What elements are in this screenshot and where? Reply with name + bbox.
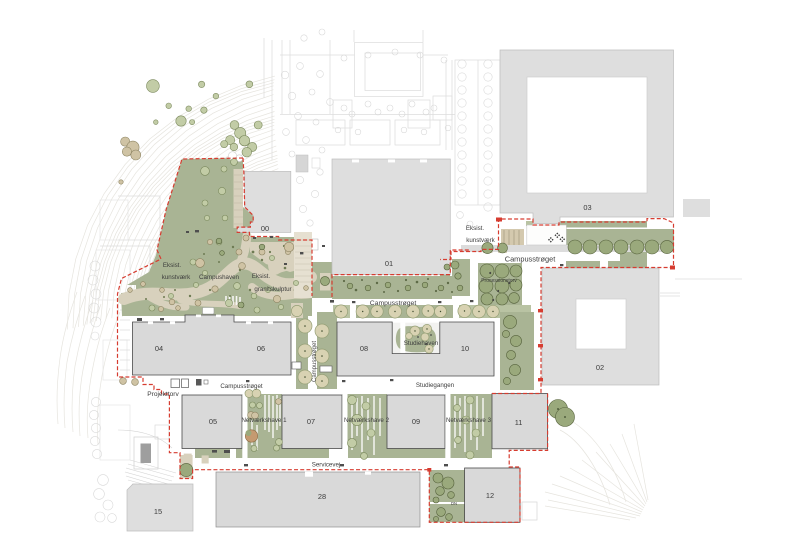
svg-text:15: 15 bbox=[154, 507, 162, 516]
svg-text:02: 02 bbox=[596, 363, 604, 372]
svg-text:11: 11 bbox=[515, 418, 523, 427]
svg-text:12: 12 bbox=[486, 491, 494, 500]
svg-text:Eksist.: Eksist. bbox=[252, 273, 271, 280]
svg-text:Projekttorv: Projekttorv bbox=[147, 391, 179, 398]
svg-text:kunstværk: kunstværk bbox=[162, 274, 191, 281]
svg-text:Processionstorv: Processionstorv bbox=[481, 278, 517, 284]
svg-text:03: 03 bbox=[583, 203, 591, 212]
svg-text:Campusstrøget: Campusstrøget bbox=[370, 300, 417, 307]
svg-text:kunstværk: kunstværk bbox=[466, 237, 495, 244]
svg-text:00: 00 bbox=[261, 224, 269, 233]
svg-text:10: 10 bbox=[461, 344, 469, 353]
svg-text:DN: DN bbox=[451, 501, 457, 506]
svg-text:07: 07 bbox=[307, 417, 315, 426]
svg-text:28: 28 bbox=[318, 492, 326, 501]
svg-text:04: 04 bbox=[155, 344, 163, 353]
svg-text:Campusstrøget: Campusstrøget bbox=[220, 383, 263, 390]
svg-text:granitskulptur: granitskulptur bbox=[254, 286, 291, 293]
svg-text:09: 09 bbox=[412, 417, 420, 426]
svg-text:Servicevej: Servicevej bbox=[312, 462, 341, 469]
svg-text:Campusstrøget: Campusstrøget bbox=[505, 255, 556, 264]
svg-text:Eksist.: Eksist. bbox=[163, 262, 182, 269]
svg-text:Netværkshave 3: Netværkshave 3 bbox=[446, 417, 492, 424]
svg-text:Studiegangen: Studiegangen bbox=[416, 382, 455, 389]
svg-text:05: 05 bbox=[209, 417, 217, 426]
svg-text:06: 06 bbox=[257, 344, 265, 353]
svg-text:Campushaven: Campushaven bbox=[199, 274, 239, 281]
svg-text:Studiehaven: Studiehaven bbox=[404, 340, 439, 347]
svg-text:Campusstrøget: Campusstrøget bbox=[312, 341, 318, 382]
svg-text:Eksist.: Eksist. bbox=[466, 225, 485, 232]
svg-text:08: 08 bbox=[360, 344, 368, 353]
svg-text:Netværkshave 1: Netværkshave 1 bbox=[241, 417, 287, 424]
svg-text:01: 01 bbox=[385, 259, 393, 268]
svg-text:Netværkshave 2: Netværkshave 2 bbox=[344, 417, 390, 424]
